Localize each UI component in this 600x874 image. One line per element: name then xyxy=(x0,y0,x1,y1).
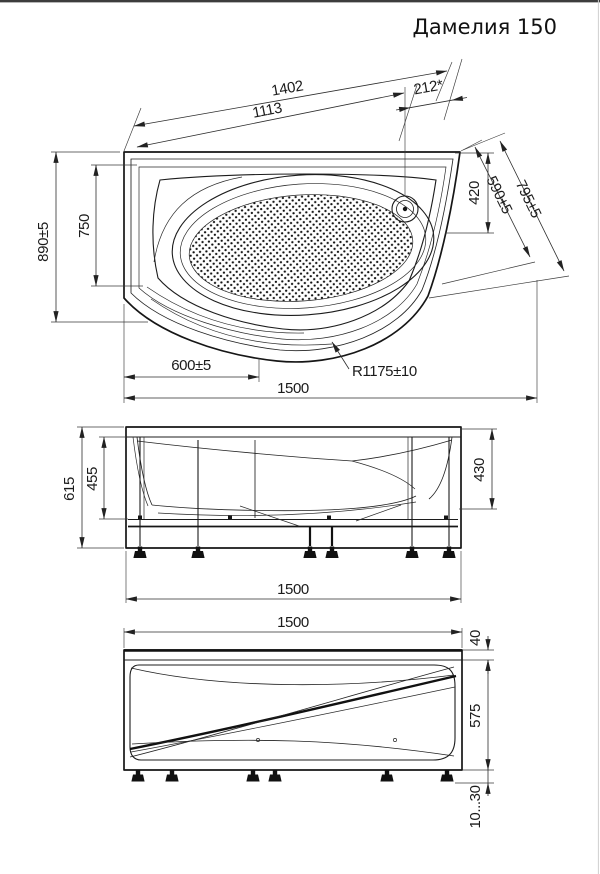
front-view: 1500 40 575 10...30 xyxy=(124,614,494,829)
dim-label-600: 600±5 xyxy=(171,357,211,374)
dim-label-feet-gap: 10...30 xyxy=(467,785,484,828)
drawing-page: Дамелия 150 xyxy=(0,0,600,874)
dim-label-420: 420 xyxy=(466,181,483,205)
dim-label-1500-side-view: 1500 xyxy=(277,581,309,598)
side-view: 615 455 430 1500 xyxy=(61,427,497,603)
side-view-dimension-lines xyxy=(82,427,492,599)
dim-label-750: 750 xyxy=(76,214,93,238)
dim-label-615: 615 xyxy=(61,477,78,501)
technical-drawing-canvas: Дамелия 150 xyxy=(0,0,600,874)
side-view-frame xyxy=(128,437,458,546)
front-panel-curves xyxy=(130,667,456,757)
dim-label-1500-front-view: 1500 xyxy=(277,614,309,631)
dim-label-212: 212* xyxy=(412,77,444,99)
side-view-interior xyxy=(133,437,452,515)
dim-label-795: 795±5 xyxy=(512,178,545,221)
dim-label-1500-top-view: 1500 xyxy=(277,380,309,397)
front-view-feet xyxy=(131,770,453,782)
front-view-outline xyxy=(124,650,462,770)
dim-label-890: 890±5 xyxy=(35,222,52,262)
dim-label-430: 430 xyxy=(471,458,488,482)
dim-label-1402: 1402 xyxy=(270,77,304,99)
dim-label-575: 575 xyxy=(467,704,484,728)
front-view-dimension-lines xyxy=(124,632,488,796)
anti-slip-dotted-area xyxy=(186,187,417,308)
drawing-title: Дамелия 150 xyxy=(413,15,558,39)
dim-label-455: 455 xyxy=(84,467,101,491)
dim-label-40: 40 xyxy=(467,630,484,646)
dim-label-590: 590±5 xyxy=(483,173,516,216)
dim-label-r1175: R1175±10 xyxy=(352,363,417,380)
drain xyxy=(392,196,418,222)
top-view: 1402 1113 212* 420 590±5 795±5 890±5 750… xyxy=(35,59,569,403)
